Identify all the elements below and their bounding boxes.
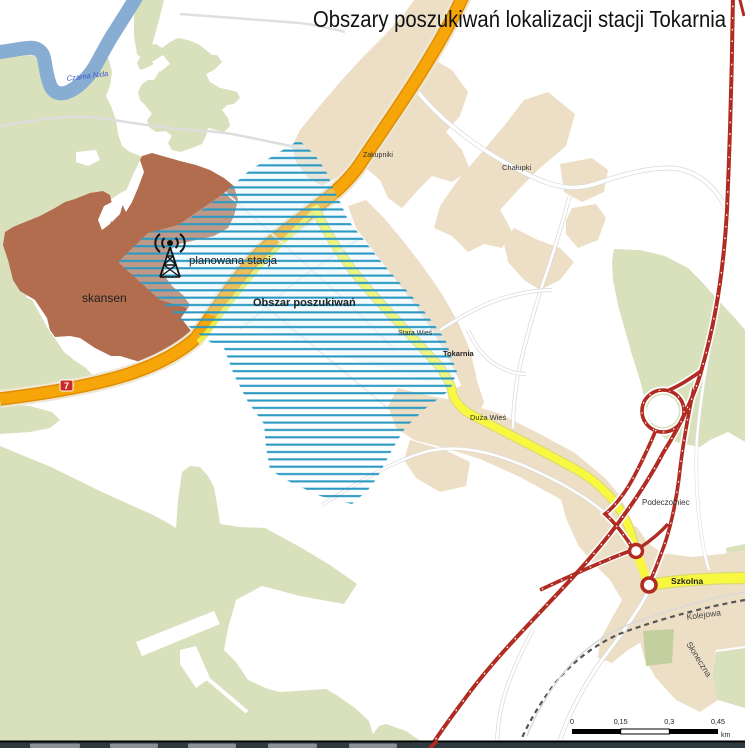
svg-text:Obszary poszukiwań lokalizacji: Obszary poszukiwań lokalizacji stacji To… <box>313 6 726 32</box>
svg-text:Obszar poszukiwań: Obszar poszukiwań <box>253 297 356 309</box>
svg-text:Szkolna: Szkolna <box>671 576 703 586</box>
svg-text:Stara Wieś: Stara Wieś <box>398 330 433 337</box>
svg-text:Duża Wieś: Duża Wieś <box>470 413 507 422</box>
svg-text:skansen: skansen <box>82 291 127 305</box>
svg-text:km: km <box>721 732 731 739</box>
svg-text:7: 7 <box>64 381 69 391</box>
svg-text:Zakupniki: Zakupniki <box>363 152 393 159</box>
svg-text:0,3: 0,3 <box>664 717 674 726</box>
svg-text:Chałupki: Chałupki <box>502 163 532 172</box>
svg-text:Tokarnia: Tokarnia <box>443 349 475 358</box>
svg-text:planowana stacja: planowana stacja <box>189 255 278 267</box>
svg-text:0,15: 0,15 <box>614 717 628 726</box>
svg-text:0: 0 <box>570 717 574 726</box>
svg-text:Podeczolniec: Podeczolniec <box>642 498 690 507</box>
svg-text:0,45: 0,45 <box>711 717 725 726</box>
